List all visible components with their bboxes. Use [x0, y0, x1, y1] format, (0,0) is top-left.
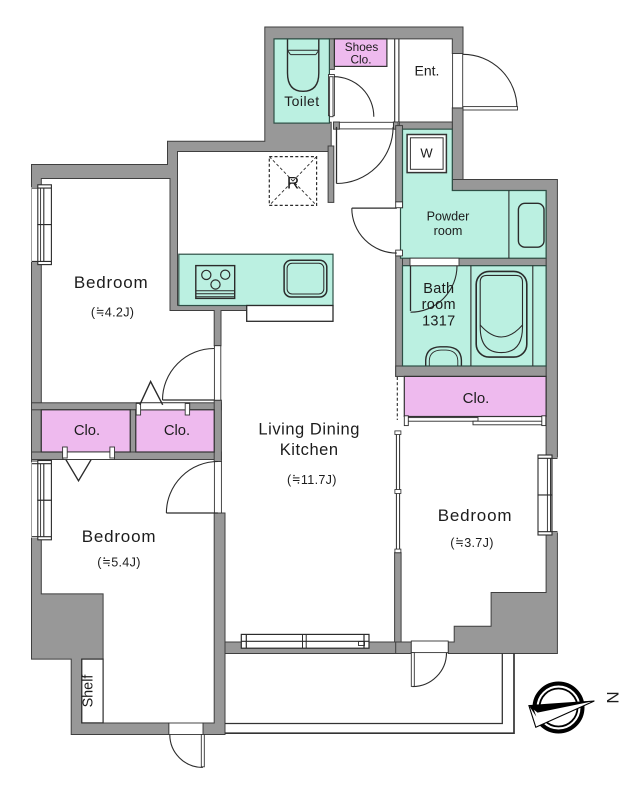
svg-text:Living Dining: Living Dining — [258, 421, 360, 439]
svg-text:Clo.: Clo. — [164, 423, 190, 439]
svg-text:N: N — [603, 691, 622, 703]
svg-text:Bedroom: Bedroom — [82, 527, 157, 546]
svg-text:Clo.: Clo. — [351, 53, 372, 67]
svg-text:room: room — [422, 297, 456, 313]
svg-text:4.2J): 4.2J) — [105, 305, 135, 319]
svg-text:5.4J): 5.4J) — [111, 556, 141, 570]
svg-text:Ent.: Ent. — [415, 63, 440, 79]
svg-text:Toilet: Toilet — [284, 93, 319, 109]
svg-text:Clo.: Clo. — [463, 390, 490, 407]
svg-text:Bath: Bath — [423, 281, 454, 297]
svg-text:1317: 1317 — [422, 314, 455, 330]
svg-text:3.7J): 3.7J) — [464, 536, 494, 550]
svg-text:Clo.: Clo. — [74, 423, 100, 439]
svg-text:Bedroom: Bedroom — [74, 273, 149, 292]
svg-text:W: W — [420, 146, 433, 161]
svg-text:Bedroom: Bedroom — [438, 506, 513, 525]
svg-text:11.7J): 11.7J) — [301, 473, 337, 487]
svg-text:Shelf: Shelf — [80, 674, 96, 708]
svg-text:R: R — [287, 174, 299, 193]
svg-text:Kitchen: Kitchen — [280, 441, 339, 459]
svg-text:Powder: Powder — [427, 210, 470, 224]
svg-text:room: room — [434, 224, 463, 238]
